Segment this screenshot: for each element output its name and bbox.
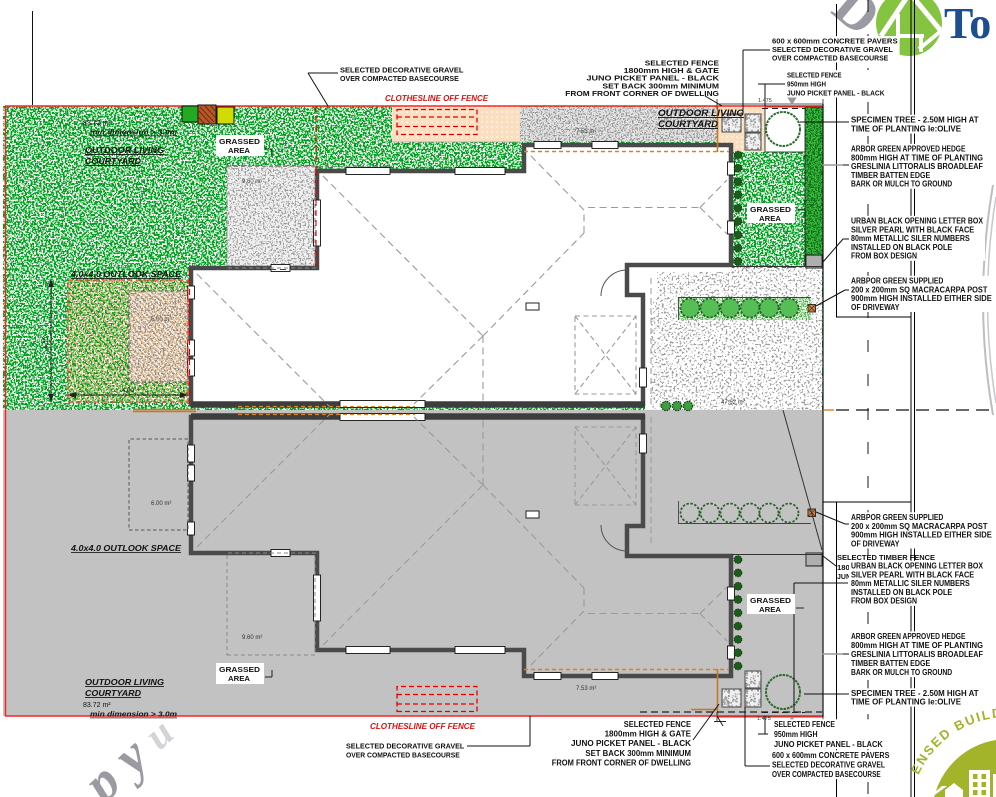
svg-text:AREA: AREA: [228, 676, 250, 683]
svg-text:80mm METALLIC SILER NUMBERS: 80mm METALLIC SILER NUMBERS: [851, 234, 970, 243]
svg-text:900mm HIGH INSTALLED EITHER SI: 900mm HIGH INSTALLED EITHER SIDE: [851, 294, 992, 303]
svg-text:9.60 m²: 9.60 m²: [242, 179, 262, 185]
svg-text:GRASSED: GRASSED: [750, 207, 791, 214]
svg-text:GRESLINIA LITTORALIS BROADLEAF: GRESLINIA LITTORALIS BROADLEAF: [851, 650, 983, 659]
svg-text:83.72 m²: 83.72 m²: [83, 702, 111, 709]
svg-text:800mm HIGH AT TIME OF PLANTING: 800mm HIGH AT TIME OF PLANTING: [851, 641, 983, 650]
svg-text:ARBPOR GREEN SUPPLIED: ARBPOR GREEN SUPPLIED: [851, 277, 944, 286]
svg-text:9.60 m²: 9.60 m²: [242, 635, 262, 641]
svg-text:GRASSED: GRASSED: [219, 667, 260, 674]
svg-text:OF DRIVEWAY: OF DRIVEWAY: [851, 539, 900, 548]
svg-text:SELECTED FENCE: SELECTED FENCE: [787, 71, 842, 80]
svg-text:TIME OF PLANTING Ie:OLIVE: TIME OF PLANTING Ie:OLIVE: [851, 698, 961, 707]
svg-text:800mm HIGH AT TIME OF PLANTING: 800mm HIGH AT TIME OF PLANTING: [851, 153, 983, 162]
svg-text:4.00: 4.00: [122, 388, 134, 394]
svg-text:SET BACK 300mm MINIMUM: SET BACK 300mm MINIMUM: [585, 749, 691, 758]
svg-text:min dimension > 3.0m: min dimension > 3.0m: [90, 710, 177, 719]
svg-text:GRASSED: GRASSED: [219, 139, 260, 146]
svg-text:ARBPOR GREEN SUPPLIED: ARBPOR GREEN SUPPLIED: [851, 513, 944, 522]
svg-text:SELECTED DECORATIVE GRAVEL: SELECTED DECORATIVE GRAVEL: [772, 761, 885, 770]
svg-text:950mm HIGH: 950mm HIGH: [787, 80, 826, 89]
svg-text:4.0x4.0 OUTLOOK SPACE: 4.0x4.0 OUTLOOK SPACE: [70, 544, 182, 553]
svg-text:SELECTED FENCE: SELECTED FENCE: [624, 720, 691, 729]
svg-text:47.62 m²: 47.62 m²: [721, 400, 745, 406]
svg-text:SILVER PEARL WITH BLACK FACE: SILVER PEARL WITH BLACK FACE: [851, 570, 974, 579]
svg-text:ARBOR GREEN APPROVED HEDGE: ARBOR GREEN APPROVED HEDGE: [851, 632, 965, 641]
svg-text:ARBOR GREEN APPROVED HEDGE: ARBOR GREEN APPROVED HEDGE: [851, 145, 965, 154]
svg-text:JUN: JUN: [837, 572, 851, 581]
svg-text:COURTYARD: COURTYARD: [658, 119, 719, 129]
svg-text:JUNO PICKET PANEL - BLACK: JUNO PICKET PANEL - BLACK: [774, 740, 883, 749]
svg-text:83.72 m²: 83.72 m²: [83, 120, 111, 127]
svg-text:1.475: 1.475: [758, 98, 772, 104]
svg-text:SILVER PEARL WITH BLACK FACE: SILVER PEARL WITH BLACK FACE: [851, 225, 974, 234]
svg-text:1.475: 1.475: [757, 716, 771, 722]
svg-text:INSTALLED ON BLACK POLE: INSTALLED ON BLACK POLE: [851, 588, 952, 597]
svg-text:min dimension > 3.0m: min dimension > 3.0m: [90, 128, 177, 137]
svg-text:INSTALLED ON BLACK POLE: INSTALLED ON BLACK POLE: [851, 243, 952, 252]
svg-text:TIMBER BATTEN EDGE: TIMBER BATTEN EDGE: [851, 659, 930, 668]
svg-text:To: To: [944, 0, 991, 48]
svg-text:4.00: 4.00: [44, 337, 50, 349]
svg-text:OVER COMPACTED BASECOURSE: OVER COMPACTED BASECOURSE: [346, 751, 460, 760]
svg-text:AREA: AREA: [228, 148, 250, 155]
svg-text:OUTDOOR LIVING: OUTDOOR LIVING: [85, 145, 164, 155]
svg-text:COURTYARD: COURTYARD: [85, 156, 141, 166]
svg-text:FROM BOX DESIGN: FROM BOX DESIGN: [851, 252, 917, 261]
svg-text:900mm HIGH INSTALLED EITHER SI: 900mm HIGH INSTALLED EITHER SIDE: [851, 531, 992, 540]
svg-text:7.53 m²: 7.53 m²: [576, 129, 596, 135]
svg-text:OUTDOOR LIVING: OUTDOOR LIVING: [85, 677, 164, 687]
svg-text:80mm METALLIC SILER NUMBERS: 80mm METALLIC SILER NUMBERS: [851, 579, 970, 588]
svg-text:BARK OR MULCH TO GROUND: BARK OR MULCH TO GROUND: [851, 668, 953, 677]
svg-text:OVER COMPACTED BASECOURSE: OVER COMPACTED BASECOURSE: [340, 74, 459, 83]
svg-text:1800mm HIGH & GATE: 1800mm HIGH & GATE: [605, 730, 691, 739]
svg-text:CLOTHESLINE OFF FENCE: CLOTHESLINE OFF FENCE: [385, 94, 489, 103]
svg-text:OVER COMPACTED BASECOURSE: OVER COMPACTED BASECOURSE: [772, 770, 881, 779]
svg-text:OVER COMPACTED BASECOURSE: OVER COMPACTED BASECOURSE: [772, 54, 888, 63]
svg-text:950mm HIGH: 950mm HIGH: [774, 730, 818, 739]
svg-text:7.53 m²: 7.53 m²: [576, 686, 596, 692]
svg-text:TIME OF PLANTING Ie:OLIVE: TIME OF PLANTING Ie:OLIVE: [851, 125, 961, 134]
svg-text:OF DRIVEWAY: OF DRIVEWAY: [851, 303, 900, 312]
svg-text:JUNO PICKET PANEL - BLACK: JUNO PICKET PANEL - BLACK: [787, 89, 885, 98]
svg-text:SPECIMEN TREE - 2.50M HIGH AT: SPECIMEN TREE - 2.50M HIGH AT: [851, 116, 979, 125]
svg-text:COURTYARD: COURTYARD: [85, 688, 141, 698]
svg-text:JUNO PICKET PANEL - BLACK: JUNO PICKET PANEL - BLACK: [571, 739, 691, 748]
svg-text:OUTDOOR LIVING: OUTDOOR LIVING: [658, 108, 744, 118]
svg-text:GRESLINIA LITTORALIS BROADLEAF: GRESLINIA LITTORALIS BROADLEAF: [851, 162, 983, 171]
svg-text:FROM BOX DESIGN: FROM BOX DESIGN: [851, 597, 917, 606]
svg-text:CLOTHESLINE OFF FENCE: CLOTHESLINE OFF FENCE: [370, 722, 476, 731]
svg-text:GRASSED: GRASSED: [750, 598, 791, 605]
svg-text:4.0x4.0 OUTLOOK SPACE: 4.0x4.0 OUTLOOK SPACE: [70, 270, 182, 279]
svg-text:AREA: AREA: [759, 216, 781, 223]
svg-text:6.00 m²: 6.00 m²: [151, 317, 171, 323]
svg-text:BARK OR MULCH TO GROUND: BARK OR MULCH TO GROUND: [851, 180, 953, 189]
svg-text:AREA: AREA: [759, 607, 781, 614]
svg-text:6.00 m²: 6.00 m²: [151, 501, 171, 507]
svg-text:200 x 200mm SQ MACRACARPA POS: 200 x 200mm SQ MACRACARPA POST: [851, 522, 988, 531]
svg-text:600 x 600mm CONCRETE PAVERS: 600 x 600mm CONCRETE PAVERS: [772, 751, 889, 760]
svg-text:URBAN BLACK OPENING LETTER BOX: URBAN BLACK OPENING LETTER BOX: [851, 562, 984, 571]
svg-text:200 x 200mm SQ MACRACARPA POS: 200 x 200mm SQ MACRACARPA POST: [851, 285, 988, 294]
svg-text:FROM FRONT CORNER OF DWELLING: FROM FRONT CORNER OF DWELLING: [565, 89, 719, 98]
svg-text:SELECTED FENCE: SELECTED FENCE: [774, 720, 835, 729]
svg-text:FROM FRONT CORNER OF DWELLING: FROM FRONT CORNER OF DWELLING: [552, 758, 691, 767]
svg-text:SELECTED DECORATIVE GRAVEL: SELECTED DECORATIVE GRAVEL: [346, 742, 465, 751]
svg-text:URBAN BLACK OPENING LETTER BOX: URBAN BLACK OPENING LETTER BOX: [851, 217, 984, 226]
svg-text:TIMBER BATTEN EDGE: TIMBER BATTEN EDGE: [851, 171, 930, 180]
